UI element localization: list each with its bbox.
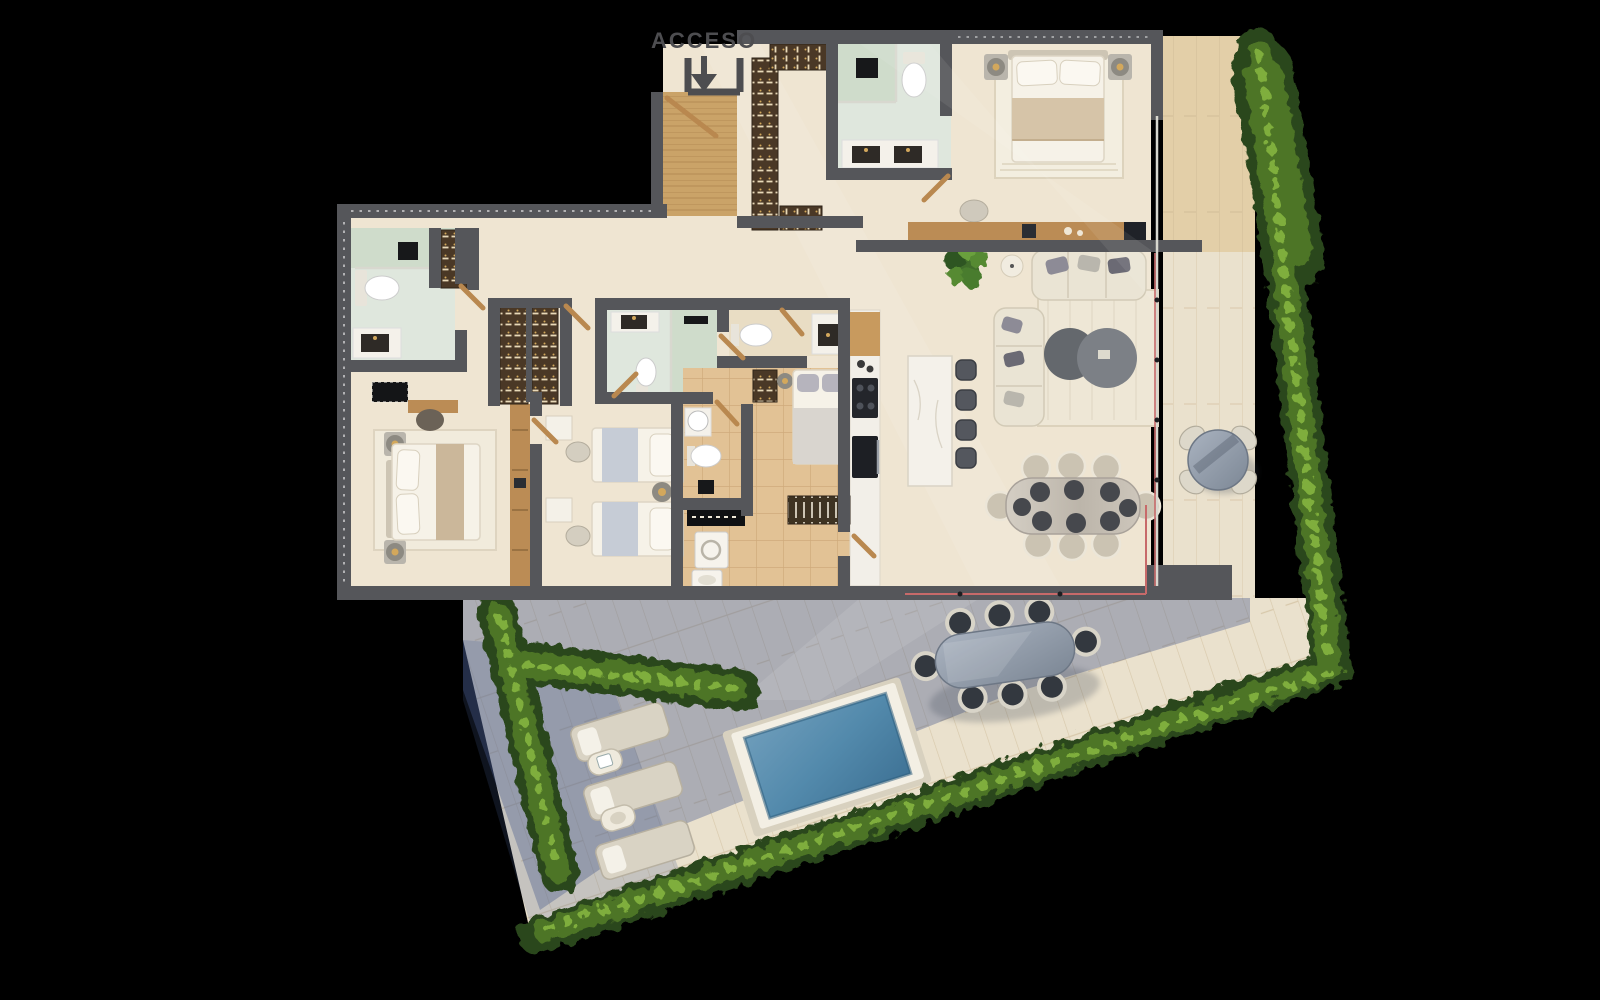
- entry-floor: [663, 92, 737, 216]
- toilet: [691, 445, 721, 467]
- toilet: [740, 324, 772, 346]
- shower-drain: [698, 480, 714, 494]
- pillow: [797, 374, 819, 392]
- closet-rail: [770, 44, 830, 70]
- pillow: [650, 508, 674, 550]
- washbasin: [688, 411, 708, 431]
- desk-chair: [960, 200, 988, 222]
- picture-frame: [1022, 224, 1036, 238]
- desk: [546, 498, 572, 522]
- shower-drain: [684, 316, 708, 324]
- table-tray: [1098, 350, 1110, 359]
- shelf-item: [514, 478, 526, 488]
- kitchen-island: [908, 356, 952, 486]
- bed-throw: [436, 444, 464, 540]
- bistro-set: [1175, 421, 1261, 498]
- wardrobe: [500, 306, 528, 404]
- desk-chair: [416, 409, 444, 431]
- floor-plan-svg: ACCESO: [0, 0, 1600, 1000]
- pillow: [1059, 60, 1100, 86]
- doormat: [372, 382, 408, 402]
- desk-chair: [566, 526, 590, 546]
- toilet: [365, 276, 399, 300]
- desk-chair: [566, 442, 590, 462]
- balcony-stone-planks: [1163, 252, 1255, 598]
- cooktop: [852, 378, 878, 418]
- terrace-wall-stub: [1146, 565, 1232, 600]
- pillow: [1016, 60, 1057, 86]
- kitchen-sink: [867, 366, 874, 373]
- bed-throw: [602, 428, 638, 482]
- bistro-table: [1188, 430, 1248, 490]
- shower-head: [856, 58, 878, 78]
- acceso-label: ACCESO: [651, 28, 757, 53]
- wardrobe: [532, 306, 558, 404]
- closet-rail: [752, 58, 778, 230]
- shower-head: [398, 242, 418, 260]
- oven: [852, 436, 878, 478]
- kitchen-cabinet: [848, 312, 880, 356]
- wardrobe-strip: [510, 404, 530, 586]
- pillow: [396, 493, 420, 534]
- bed-throw: [1012, 98, 1104, 140]
- toilet-tank: [731, 324, 739, 346]
- kitchen-sink: [857, 360, 865, 368]
- floor-plan-canvas: ACCESO: [0, 0, 1600, 1000]
- washer: [695, 532, 728, 568]
- pillow: [650, 434, 674, 476]
- closet-shelf: [753, 370, 777, 402]
- toilet: [636, 358, 656, 386]
- pillow: [396, 449, 420, 490]
- bed-throw: [602, 502, 638, 556]
